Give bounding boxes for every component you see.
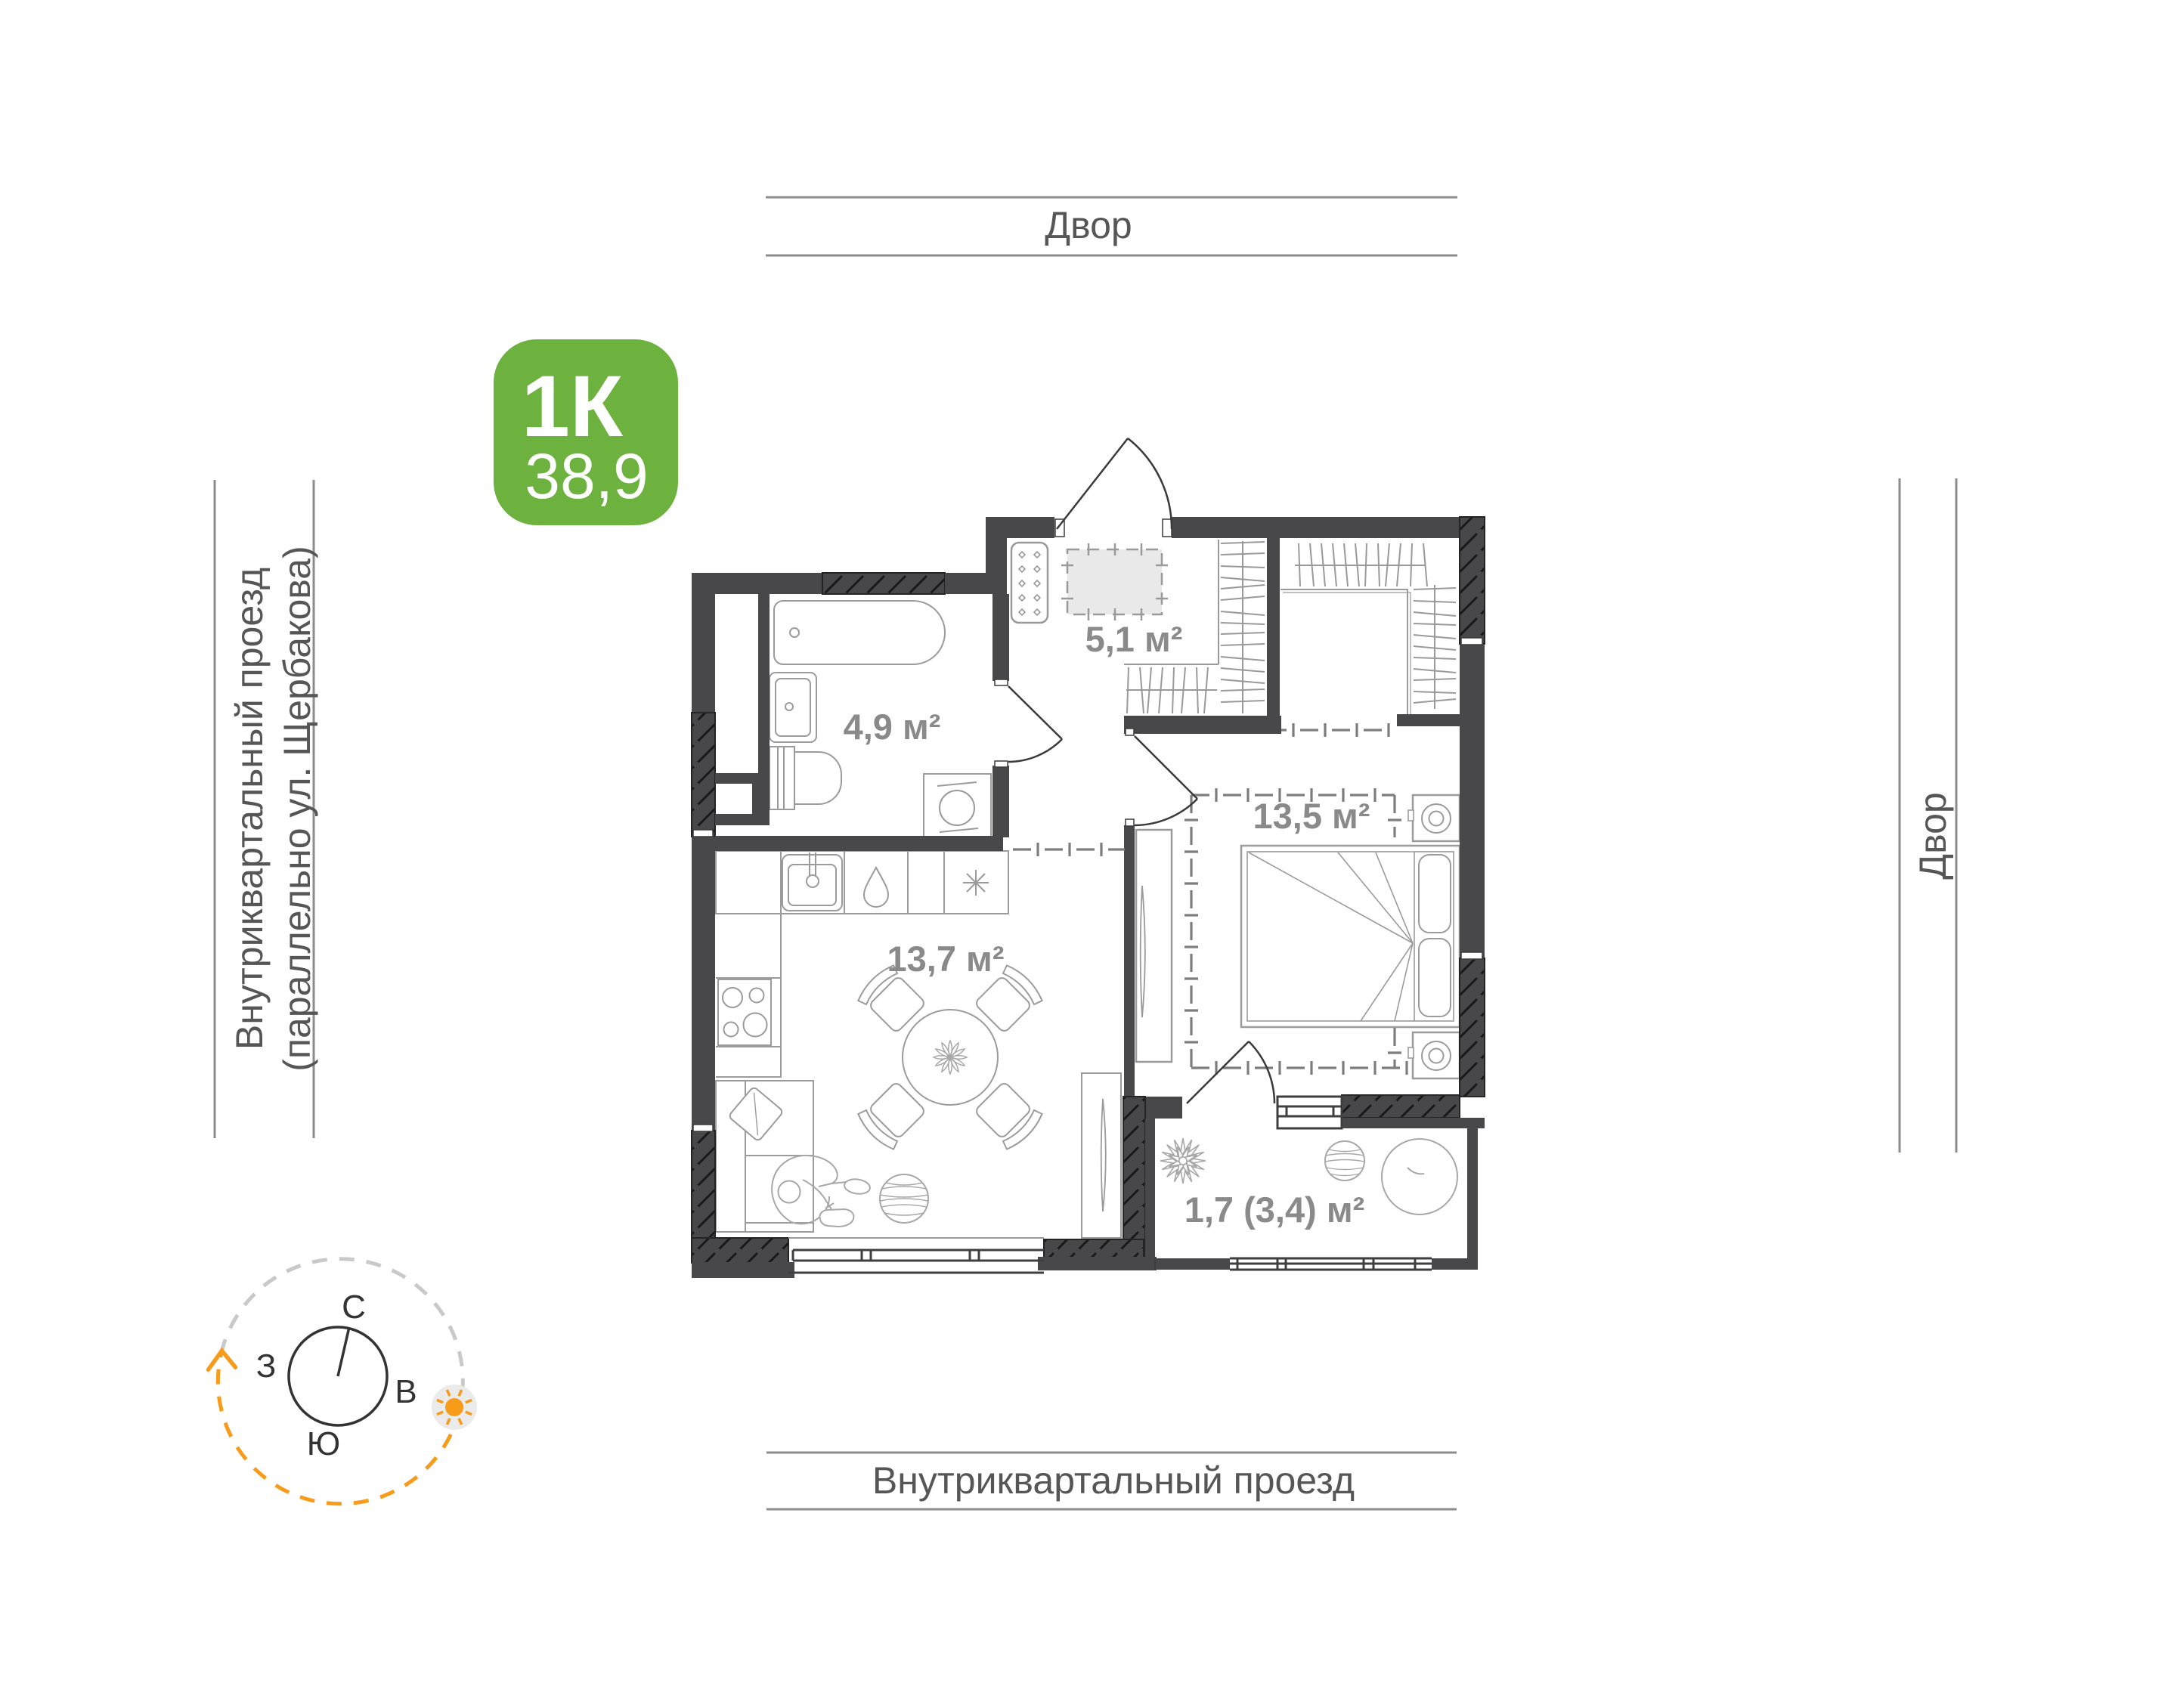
svg-text:4,9 м²: 4,9 м² — [844, 707, 941, 747]
svg-text:С: С — [342, 1289, 366, 1326]
svg-text:В: В — [395, 1373, 417, 1410]
svg-text:Внутриквартальный проезд: Внутриквартальный проезд — [228, 568, 271, 1050]
svg-text:5,1 м²: 5,1 м² — [1085, 619, 1183, 659]
svg-text:Ю: Ю — [307, 1425, 340, 1462]
svg-text:Внутриквартальный проезд: Внутриквартальный проезд — [872, 1459, 1355, 1502]
svg-text:Двор: Двор — [1912, 792, 1954, 879]
svg-text:Двор: Двор — [1045, 204, 1132, 246]
svg-text:1,7 (3,4) м²: 1,7 (3,4) м² — [1184, 1190, 1365, 1230]
svg-text:З: З — [256, 1348, 277, 1385]
svg-text:13,7 м²: 13,7 м² — [887, 939, 1005, 979]
svg-text:38,9: 38,9 — [525, 441, 649, 512]
svg-text:13,5 м²: 13,5 м² — [1253, 796, 1370, 836]
svg-text:(параллельно ул. Щербакова): (параллельно ул. Щербакова) — [276, 546, 318, 1072]
